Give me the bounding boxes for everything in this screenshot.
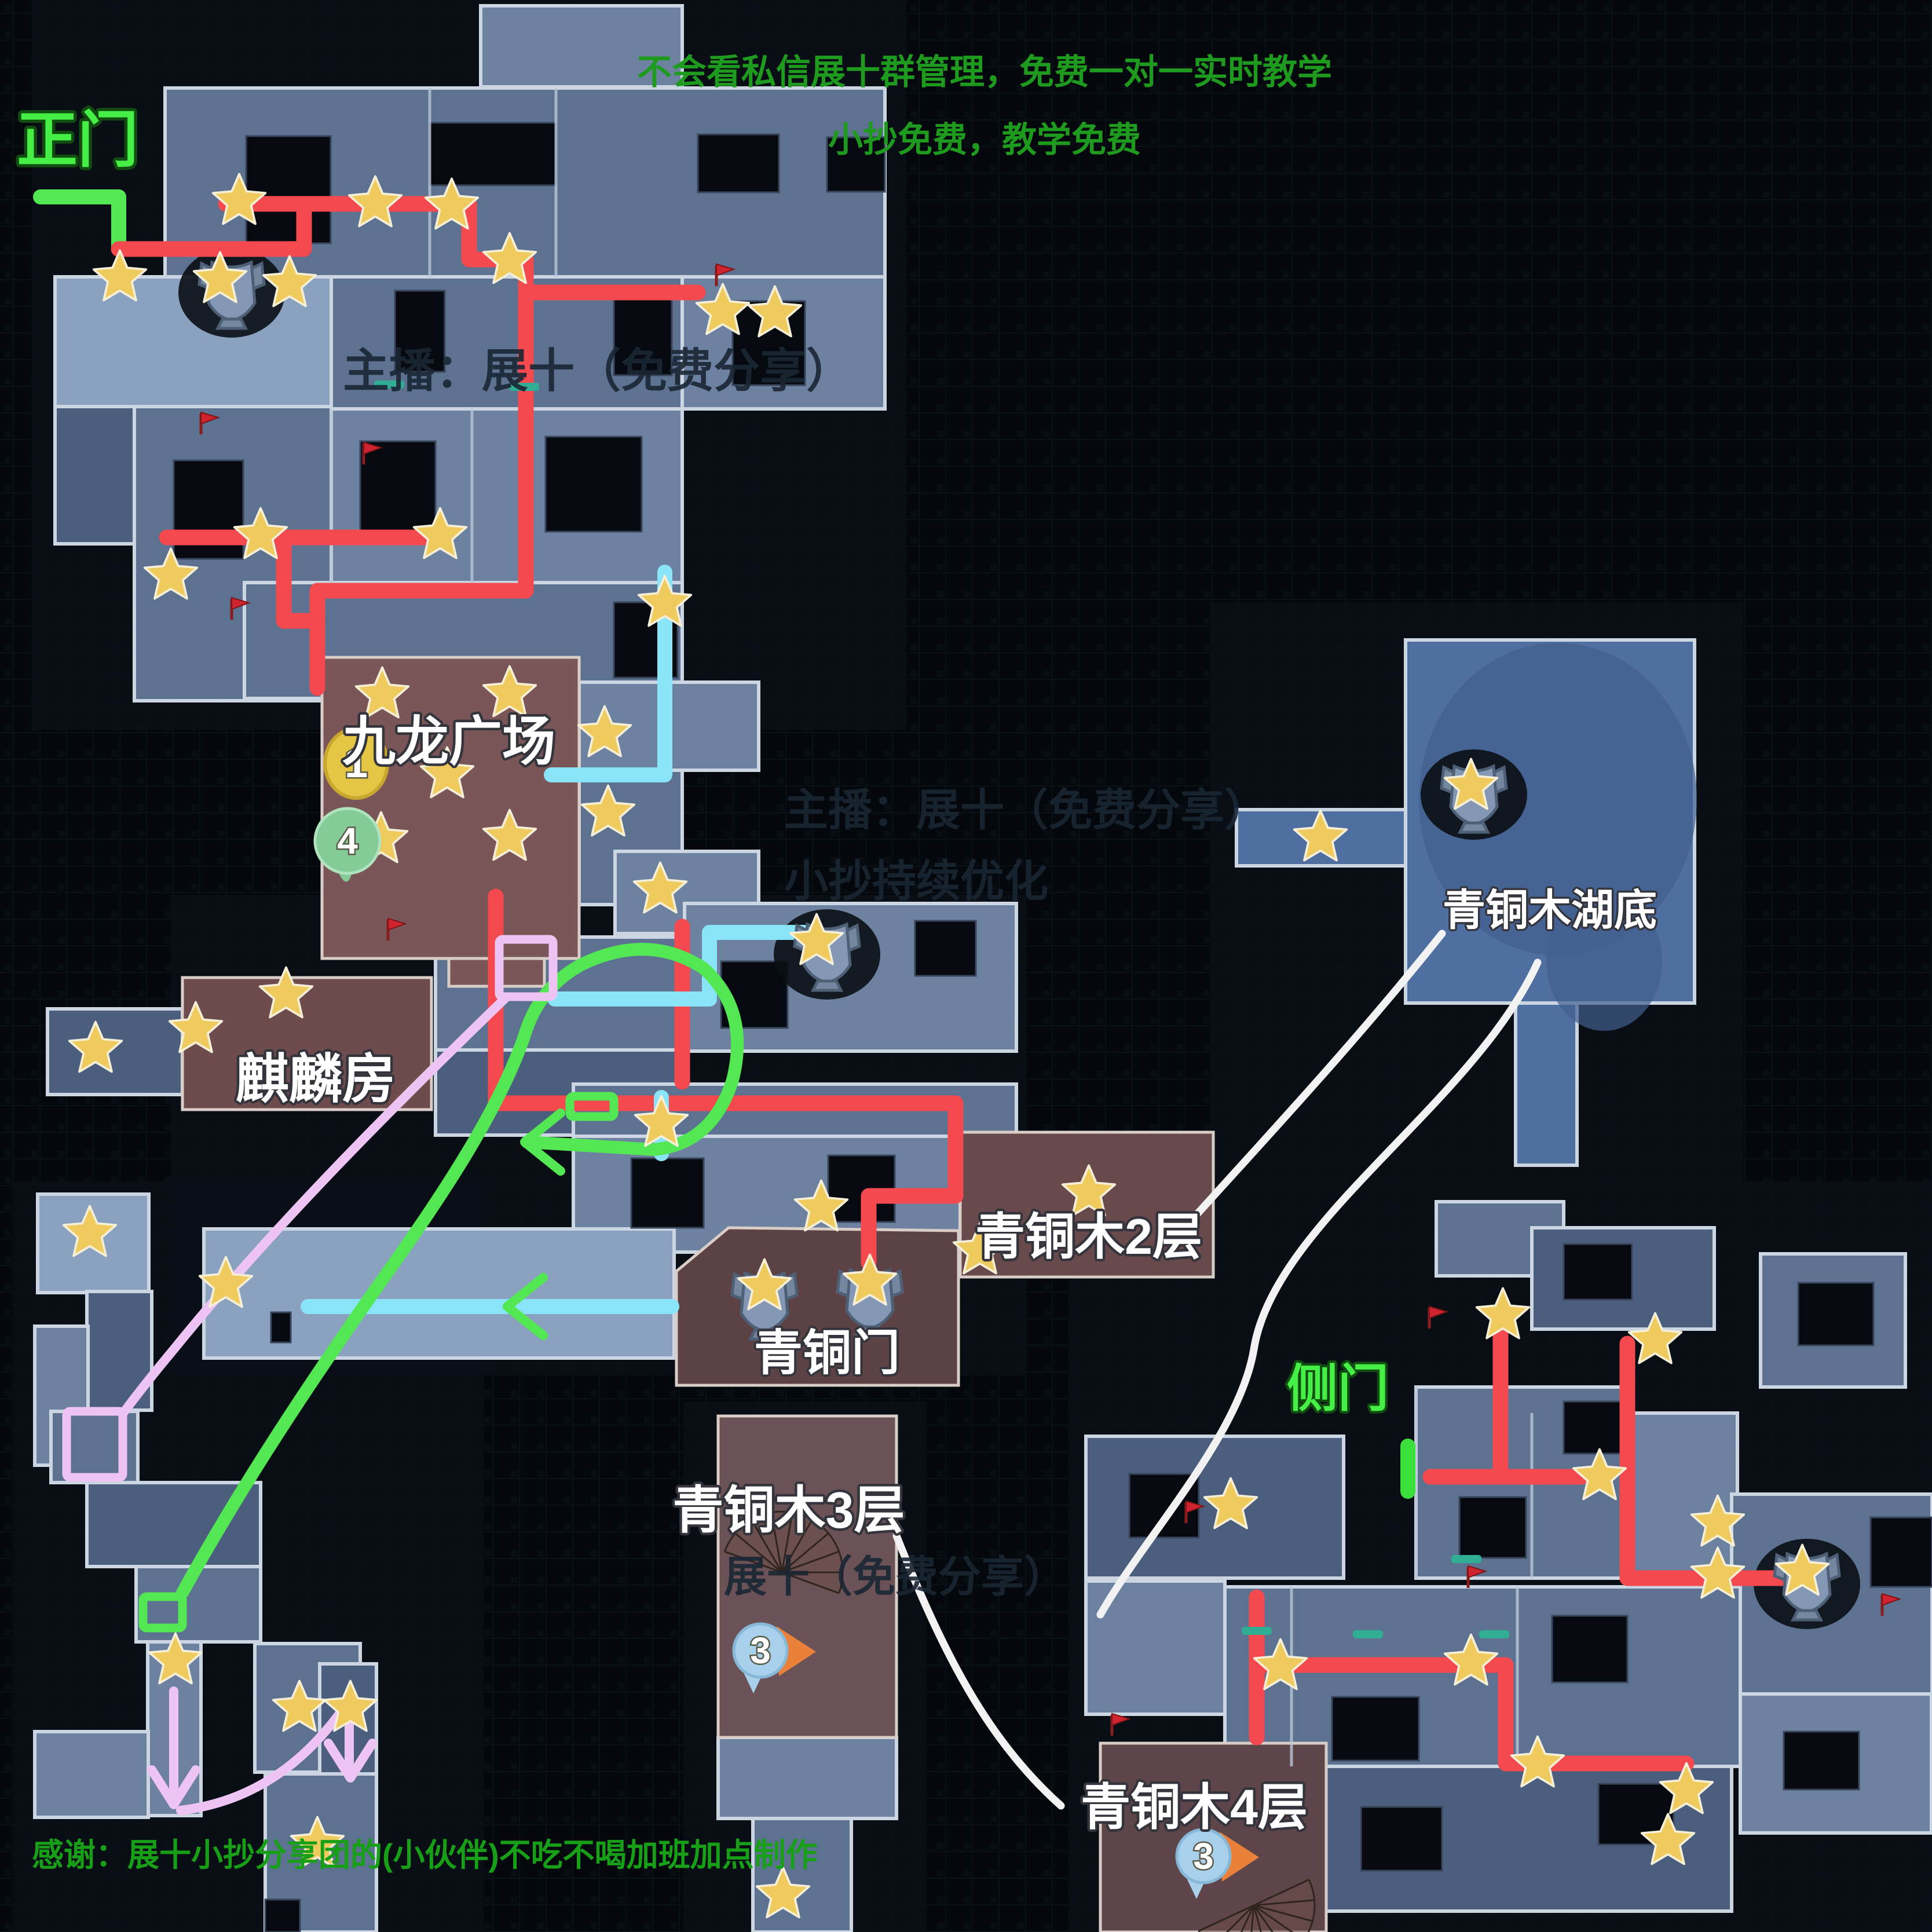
watermark-note: 小抄持续优化 [784, 857, 1048, 906]
map-hole [1871, 1517, 1932, 1587]
door-marker [1242, 1627, 1272, 1635]
label-bronze-gate: 青铜门 [754, 1326, 900, 1380]
label-main-gate: 正门 [17, 107, 138, 174]
badge-value: 3 [750, 1630, 771, 1671]
map-hole [246, 136, 331, 243]
side-door-bar [1400, 1439, 1415, 1499]
map-room [47, 1009, 182, 1095]
map-hole [1564, 1402, 1622, 1454]
map-room [1633, 1413, 1737, 1578]
map-hole [271, 1312, 291, 1342]
label-kowloon-plaza: 九龙广场 [342, 712, 555, 771]
door-marker [1451, 1555, 1481, 1563]
door-marker [1353, 1630, 1383, 1638]
map-hole [430, 123, 556, 185]
door-marker [1479, 1630, 1509, 1638]
map-room [35, 1732, 148, 1817]
top-banner-line1: 不会看私信展十群管理，免费一对一实时教学 [637, 53, 1332, 92]
label-side-gate: 侧门 [1287, 1360, 1389, 1417]
game-map-screenshot: 1433 主播：展十（免费分享） 主播：展十（免费分享） 小抄持续优化 展十（免… [0, 0, 1932, 1932]
map-hole [1784, 1732, 1859, 1790]
map-room [718, 1737, 897, 1818]
map-hole [1361, 1807, 1442, 1871]
label-bronze-wood-f4: 青铜木4层 [1081, 1780, 1308, 1835]
map-hole [1564, 1244, 1632, 1300]
map-room [1516, 1003, 1577, 1165]
map-hole [915, 921, 976, 976]
map-hole [631, 1158, 704, 1228]
map-room [322, 657, 579, 958]
top-banner-line2: 小抄免费，教学免费 [828, 120, 1141, 159]
map-hole [265, 1900, 300, 1932]
label-bronze-wood-f3: 青铜木3层 [673, 1481, 905, 1539]
map-room [55, 407, 134, 544]
map-hole [546, 437, 642, 532]
label-kirin-room: 麒麟房 [236, 1050, 396, 1109]
map-hole [1798, 1283, 1874, 1345]
map-hole [1459, 1497, 1526, 1558]
label-bronze-wood-lakebed: 青铜木湖底 [1443, 886, 1657, 934]
badge-value: 4 [337, 820, 358, 862]
badge-value: 3 [1193, 1835, 1214, 1877]
map-hole [360, 441, 436, 532]
watermark-streamer-3: 展十（免费分享） [724, 1553, 1067, 1601]
map-hole [1332, 1697, 1419, 1761]
footer-credit: 感谢：展十小抄分享团的(小伙伴)不吃不喝加班加点制作 [32, 1837, 818, 1873]
map-canvas: 1433 主播：展十（免费分享） 主播：展十（免费分享） 小抄持续优化 展十（免… [0, 0, 1932, 1932]
watermark-streamer-2: 主播：展十（免费分享） [784, 786, 1268, 835]
map-hole [698, 134, 779, 192]
watermark-streamer-1: 主播：展十（免费分享） [343, 345, 852, 397]
label-bronze-wood-f2: 青铜木2层 [975, 1209, 1202, 1265]
map-hole [1552, 1616, 1627, 1682]
